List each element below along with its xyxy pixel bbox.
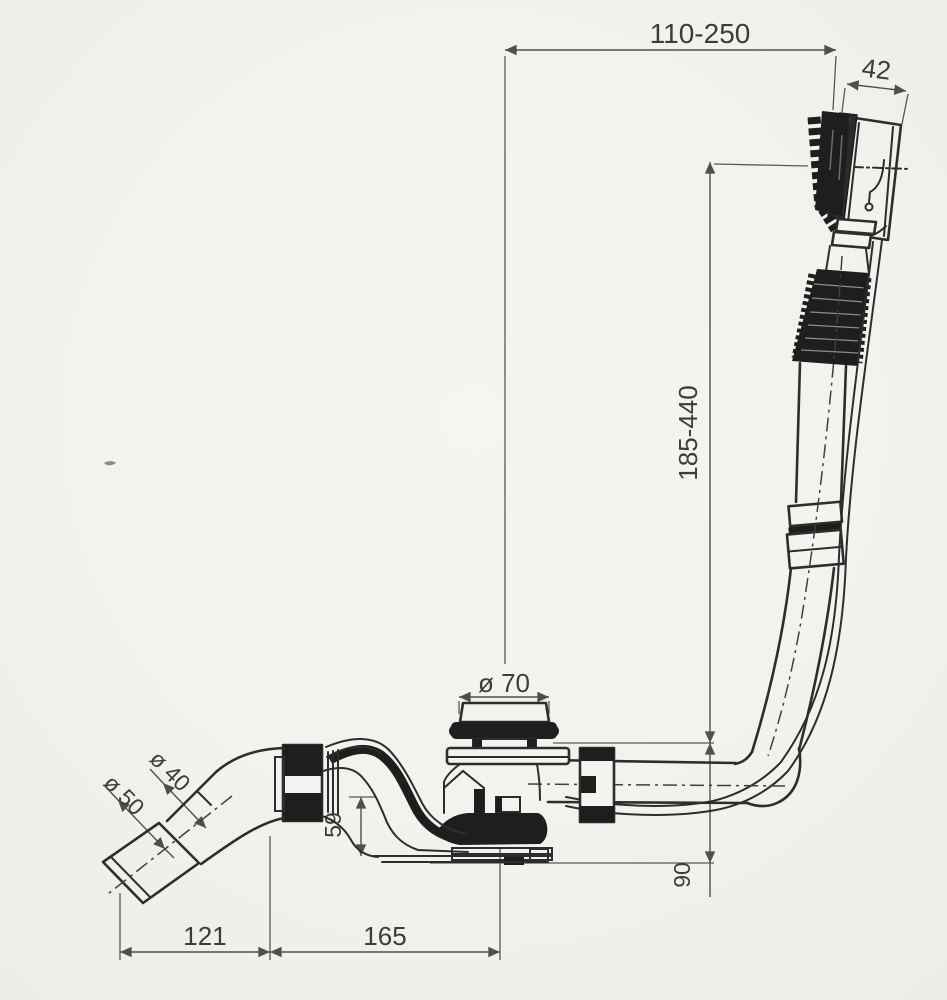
drain-body-right xyxy=(537,764,540,800)
dim-label-outlet-offset: 121 xyxy=(183,921,226,951)
pipe-centerline xyxy=(528,784,790,786)
outlet-union-bottom-band xyxy=(283,793,322,821)
bath-waste-overflow-drawing: 110-250 42 185-440 90 ø 70 59 121 165 ø … xyxy=(0,0,947,1000)
leader-tail-50b xyxy=(165,849,174,858)
dim-label-base-drop: 90 xyxy=(669,862,695,888)
outlet-union-top-band xyxy=(283,745,322,776)
dim-label-outlet-pipe-diameter: ø 40 xyxy=(145,745,196,796)
dim-line-overflow-width xyxy=(847,84,906,91)
tube-elbow-inner xyxy=(735,752,752,764)
outlet-elbow-assembly xyxy=(103,745,322,903)
trap-inlet-bar xyxy=(474,789,484,813)
scan-artifact xyxy=(104,461,116,465)
overflow-fitting xyxy=(814,111,910,274)
coupling-nut-upper xyxy=(788,502,842,526)
drain-outlet-socket-shade xyxy=(496,797,502,812)
outlet-pipe-tick xyxy=(197,791,211,805)
outlet-pipe-lower-edge xyxy=(201,818,284,864)
pipe-union-blob xyxy=(581,776,596,793)
dim-label-plug-diameter: ø 70 xyxy=(478,668,530,698)
scanned-technical-drawing: 110-250 42 185-440 90 ø 70 59 121 165 ø … xyxy=(0,0,947,1000)
overflow-cable-hook xyxy=(869,160,884,202)
tube-lower-left-edge xyxy=(752,568,791,752)
pipe-top-edge xyxy=(548,760,736,763)
dim-label-overflow-drop: 185-440 xyxy=(673,385,703,480)
drain-body-left xyxy=(444,764,460,813)
plug-seal-ring xyxy=(451,722,557,739)
seal-bulge-left xyxy=(449,725,461,737)
dim-label-top-span: 110-250 xyxy=(650,18,751,49)
ext-line-42-left xyxy=(842,88,845,112)
overflow-centerline xyxy=(854,167,910,169)
dim-label-overflow-width: 42 xyxy=(860,52,892,85)
ext-line-overflow-level xyxy=(714,164,808,166)
dim-label-trap-length: 165 xyxy=(363,921,406,951)
ext-line-42-right xyxy=(902,94,908,124)
overflow-tail-tube xyxy=(826,246,869,274)
dim-label-outlet-sleeve-diameter: ø 50 xyxy=(99,769,150,820)
ext-line-overflow-center xyxy=(833,56,836,110)
plug-neck-shade-left xyxy=(473,739,482,748)
trap-channel-dark xyxy=(330,749,460,840)
pipe-union-top-band xyxy=(580,748,614,761)
pipe-union-bottom-band xyxy=(580,806,614,822)
seal-bulge-right xyxy=(547,725,559,737)
overflow-locknut-lower xyxy=(832,232,871,248)
overflow-housing-inner-right xyxy=(884,127,893,236)
plug-neck xyxy=(473,739,536,748)
plug-neck-shade-right xyxy=(527,739,536,748)
waste-plug-cap xyxy=(460,703,549,722)
drain-base-foot xyxy=(504,856,524,865)
overflow-cable-pivot xyxy=(866,204,873,211)
flexible-overflow-hose xyxy=(735,256,869,806)
pipe-bottom-edge xyxy=(548,802,748,803)
tube-couplings xyxy=(784,502,845,569)
